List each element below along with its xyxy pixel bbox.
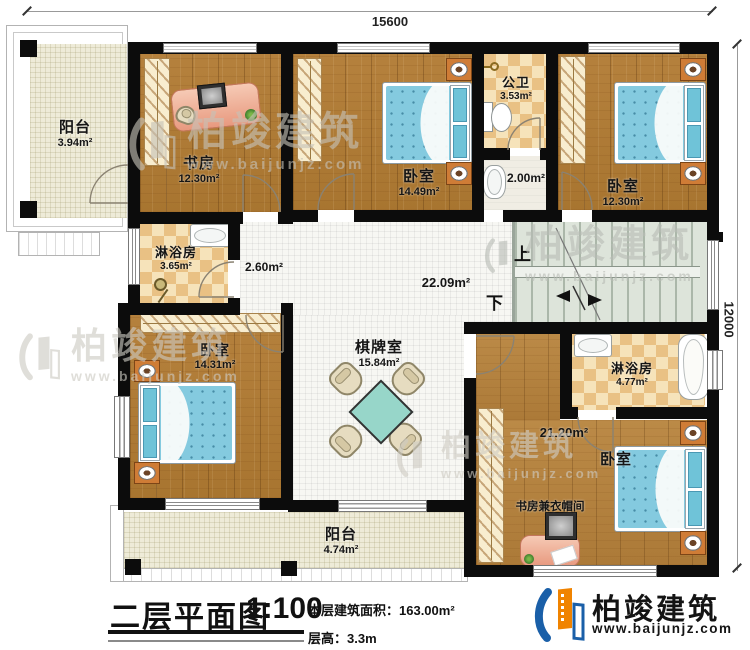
room-label-balcony-bottom: 阳台 4.74m² — [307, 527, 375, 556]
room-label-bedroom-br-name: 卧室 — [588, 452, 644, 469]
wall-h-stairs-bottom — [464, 322, 707, 334]
floor-area-text: 本层建筑面积：163.00m² — [308, 600, 455, 619]
nightstand — [134, 462, 160, 484]
floor-height-text: 层高：3.3m — [308, 628, 377, 647]
wall-h-bedtr-a — [550, 210, 562, 222]
room-label-shower-right: 淋浴房 4.77m² — [600, 362, 664, 388]
balcony-tl-lower-rail — [18, 232, 100, 256]
room-label-hall-small: 2.60m² — [234, 261, 294, 274]
nightstand — [680, 421, 706, 445]
nightstand — [134, 360, 160, 382]
br-monitor — [545, 512, 577, 540]
balcony-tl-post-top — [20, 40, 37, 57]
bed-bedroom-left — [138, 382, 236, 464]
wall-h-bedmid-b — [354, 210, 484, 222]
study-plant — [245, 109, 257, 121]
room-label-study-closet: 书房兼衣帽间 — [505, 501, 595, 514]
floorplan-page: { "plan": { "dim_top": "15600", "dim_rig… — [0, 0, 750, 650]
bed-headboard — [450, 85, 470, 161]
room-label-public-bath: 公卫 3.53m² — [491, 76, 541, 102]
wall-h-bedleft-top-a — [118, 303, 240, 315]
watermark-logo-icon — [18, 328, 64, 384]
wall-h-study-a — [128, 212, 243, 224]
toilet-bowl — [491, 103, 512, 132]
closet-bedroom-left — [140, 313, 281, 333]
window-bath-right — [707, 350, 723, 390]
shower-right-sink — [574, 334, 612, 357]
title-underline-thin — [108, 640, 304, 642]
nightstand — [680, 162, 706, 185]
window-bedroom-tr — [588, 43, 680, 53]
room-label-study: 书房 12.30m² — [163, 156, 235, 185]
bed-headboard — [685, 449, 705, 529]
study-monitor — [197, 83, 227, 110]
wall-h-study-b — [278, 212, 286, 224]
shower-left-sink — [190, 224, 230, 247]
bedroom-br-floor-a — [476, 333, 560, 420]
bathtub — [678, 334, 709, 400]
wall-h-bedmid-a — [293, 210, 318, 222]
dimension-line-right — [737, 45, 738, 571]
closet-bedroom-tr — [560, 56, 586, 164]
brand-url: www.baijunjz.com — [592, 621, 733, 636]
wall-v-bedmid-bath — [472, 42, 484, 222]
wall-v-shower-left-a — [228, 212, 240, 260]
wall-right-b — [707, 310, 719, 350]
wall-v-brsuite-left — [464, 378, 476, 577]
towel-ring-icon — [490, 62, 499, 71]
dimension-top-label: 15600 — [340, 14, 440, 29]
wall-right-a — [707, 42, 719, 232]
bed-headboard — [684, 85, 704, 161]
wall-h-br-bottom-a — [464, 565, 533, 577]
wall-h-shower-right-bottom-a — [560, 407, 578, 419]
closet-bedroom-mid — [297, 58, 322, 162]
br-desk-plant — [524, 554, 534, 564]
room-label-shower-left: 淋浴房 3.65m² — [145, 246, 207, 272]
window-study — [163, 43, 257, 53]
wall-v-bedleft-right — [281, 303, 293, 510]
wall-right-c — [707, 390, 719, 577]
nightstand — [680, 531, 706, 555]
wall-h-vanity-bottom — [503, 210, 550, 222]
bed-headboard — [140, 385, 160, 461]
balcony-bottom-left-rail — [110, 505, 124, 582]
window-bedroom-left — [114, 396, 130, 458]
wall-h-shower-right-bottom-b — [616, 407, 707, 419]
bed-bedroom-tr — [614, 82, 706, 164]
window-bedroom-br — [533, 565, 657, 577]
window-bedroom-mid — [337, 43, 430, 53]
closet-bedroom-br — [478, 408, 504, 563]
sliding-door-balcony — [338, 500, 427, 512]
wall-h-bedtr-b — [592, 210, 719, 222]
stairs-landing — [515, 266, 700, 278]
balcony-tl-post-bottom — [20, 201, 37, 218]
room-label-bedroom-br-area: 21.20m² — [536, 426, 592, 441]
window-stairs — [707, 240, 719, 310]
room-label-bedroom-tr: 卧室 12.30m² — [588, 179, 658, 208]
dimension-right-label: 12000 — [722, 290, 737, 350]
stairs-down-label: 下 — [486, 289, 503, 314]
wall-v-study-bedmid — [281, 42, 293, 224]
stairs-up-label: 上 — [514, 240, 531, 265]
wall-v-bath-bedtr — [546, 42, 558, 212]
nightstand — [446, 58, 472, 81]
dimension-line-top — [27, 11, 713, 12]
room-label-hall-main: 22.09m² — [410, 276, 482, 291]
wall-h-bath-vanity-a — [472, 148, 510, 160]
wall-h-gameroom-bottom-a — [288, 500, 338, 512]
balcony-bottom-post-2 — [281, 561, 297, 576]
window-shower-left — [128, 228, 140, 285]
balcony-bottom-floor — [124, 512, 464, 568]
window-bedroom-left-south — [165, 498, 260, 510]
room-label-vanity: 2.00m² — [500, 172, 552, 185]
nightstand — [680, 58, 706, 81]
title-underline-thick — [108, 630, 304, 634]
bed-bedroom-mid — [382, 82, 472, 164]
wall-h-bath-vanity-b — [540, 148, 558, 160]
wall-h-bedleft-bottom-a — [118, 498, 165, 510]
balcony-bottom-post-1 — [125, 559, 141, 575]
room-label-balcony-tl: 阳台 3.94m² — [40, 120, 110, 149]
brand-logo-icon — [534, 583, 588, 643]
closet-study — [144, 58, 170, 166]
room-label-bedroom-left: 卧室 14.31m² — [180, 343, 250, 371]
room-label-game-room: 棋牌室 15.84m² — [341, 340, 417, 369]
room-label-bedroom-mid: 卧室 14.49m² — [383, 169, 455, 198]
